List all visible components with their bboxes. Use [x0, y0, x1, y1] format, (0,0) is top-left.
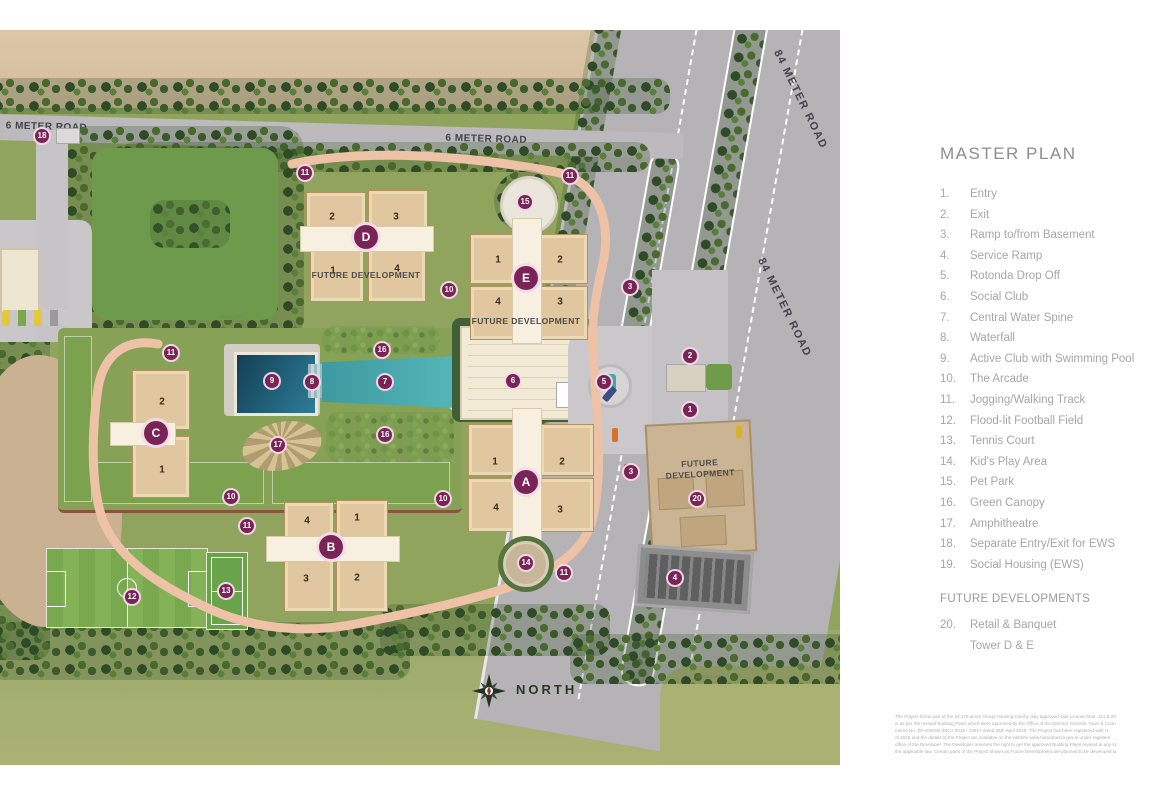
legend-item-number: 9.	[940, 353, 970, 365]
map-marker-3: 3	[623, 280, 637, 294]
legend-item-label: Kid's Play Area	[970, 456, 1047, 468]
legend-item: 19. Social Housing (EWS)	[940, 559, 1165, 580]
legend-item-number: 13.	[940, 435, 970, 447]
legend-item: 2. Exit	[940, 209, 1165, 230]
disclaimer-line: The Project forms part of the 24.175 acr…	[895, 713, 1167, 720]
disclaimer-line: office of the Developer. The Developer r…	[895, 741, 1167, 748]
map-marker-7: 7	[378, 375, 392, 389]
map-marker-15: 15	[518, 195, 532, 209]
legend-item: 17. Amphitheatre	[940, 518, 1165, 539]
map-marker-6: 6	[506, 374, 520, 388]
legend-item-label: Tower D & E	[970, 640, 1034, 652]
legend-item: 18. Separate Entry/Exit for EWS	[940, 538, 1165, 559]
legend-future-items: 20. Retail & Banquet Tower D & E	[940, 619, 1165, 660]
legend-item-number: 4.	[940, 250, 970, 262]
legend-item-label: Active Club with Swimming Pool	[970, 353, 1134, 365]
legend-item-number: 8.	[940, 332, 970, 344]
legend-list: 1. Entry 2. Exit 3. Ramp to/from Basemen…	[940, 188, 1165, 660]
map-marker-20: 20	[690, 492, 704, 506]
legend-items: 1. Entry 2. Exit 3. Ramp to/from Basemen…	[940, 188, 1165, 579]
legend-item-number: 20.	[940, 619, 970, 631]
map-marker-18: 18	[35, 129, 49, 143]
legend-item-label: Waterfall	[970, 332, 1015, 344]
legend-item: 20. Retail & Banquet	[940, 619, 1165, 640]
legend-item: 12. Flood-lit Football Field	[940, 415, 1165, 436]
legend-title: MASTER PLAN	[940, 144, 1076, 164]
legend-item-label: Ramp to/from Basement	[970, 229, 1095, 241]
legend-item: Tower D & E	[940, 640, 1165, 661]
legend-item: 1. Entry	[940, 188, 1165, 209]
legend-item-label: Central Water Spine	[970, 312, 1073, 324]
map-marker-17: 17	[271, 438, 285, 452]
legend-item: 7. Central Water Spine	[940, 312, 1165, 333]
legend-item-label: Social Housing (EWS)	[970, 559, 1084, 571]
legend-item-number: 15.	[940, 476, 970, 488]
legend-disclaimer: The Project forms part of the 24.175 acr…	[895, 713, 1167, 755]
legend-item-number: 1.	[940, 188, 970, 200]
legend-item: 10. The Arcade	[940, 373, 1165, 394]
legend-item: 13. Tennis Court	[940, 435, 1165, 456]
legend-item-number: 16.	[940, 497, 970, 509]
legend-item: 3. Ramp to/from Basement	[940, 229, 1165, 250]
legend-item-number: 11.	[940, 394, 970, 406]
map-marker-1: 1	[683, 403, 697, 417]
map-marker-11: 11	[240, 519, 254, 533]
disclaimer-line: the applicable law. Certain parts of the…	[895, 748, 1167, 755]
map-marker-10: 10	[224, 490, 238, 504]
legend-item-label: Rotonda Drop Off	[970, 270, 1060, 282]
map-marker-12: 12	[125, 590, 139, 604]
disclaimer-line: memo No. ZP-409/SD (DK) / 2019 / 10517 d…	[895, 727, 1167, 734]
legend-panel: MASTER PLAN 1. Entry 2. Exit 3. Ramp to/…	[840, 0, 1170, 785]
legend-item-number: 18.	[940, 538, 970, 550]
legend-item-number: 19.	[940, 559, 970, 571]
legend-item-number: 3.	[940, 229, 970, 241]
map-marker-11: 11	[557, 566, 571, 580]
legend-item: 15. Pet Park	[940, 476, 1165, 497]
map-marker-13: 13	[219, 584, 233, 598]
map-marker-3: 3	[624, 465, 638, 479]
legend-item-number: 14.	[940, 456, 970, 468]
legend-item-number: 7.	[940, 312, 970, 324]
map-marker-16: 16	[378, 428, 392, 442]
legend-item: 14. Kid's Play Area	[940, 456, 1165, 477]
legend-item-number: 10.	[940, 373, 970, 385]
legend-item-number: 12.	[940, 415, 970, 427]
legend-item: 16. Green Canopy	[940, 497, 1165, 518]
map-marker-4: 4	[668, 571, 682, 585]
legend-item-label: Service Ramp	[970, 250, 1042, 262]
legend-item-number: 17.	[940, 518, 970, 530]
legend-item-number: 5.	[940, 270, 970, 282]
legend-future-header: FUTURE DEVELOPMENTS	[940, 593, 1165, 613]
legend-item-label: Social Club	[970, 291, 1028, 303]
legend-item-label: Separate Entry/Exit for EWS	[970, 538, 1115, 550]
map-marker-16: 16	[375, 343, 389, 357]
markers-layer: 1811111111111510101098716161765332120412…	[0, 30, 840, 765]
disclaimer-line: is as per the revised Building Plans whi…	[895, 720, 1167, 727]
map-marker-11: 11	[164, 346, 178, 360]
legend-item-label: Entry	[970, 188, 997, 200]
legend-item-label: The Arcade	[970, 373, 1029, 385]
legend-item: 8. Waterfall	[940, 332, 1165, 353]
legend-item-label: Tennis Court	[970, 435, 1035, 447]
legend-item-label: Flood-lit Football Field	[970, 415, 1083, 427]
legend-item: 6. Social Club	[940, 291, 1165, 312]
map-marker-9: 9	[265, 374, 279, 388]
legend-item-number: 6.	[940, 291, 970, 303]
legend-item-number: 2.	[940, 209, 970, 221]
legend-item: 9. Active Club with Swimming Pool	[940, 353, 1165, 374]
legend-item: 5. Rotonda Drop Off	[940, 270, 1165, 291]
legend-item: 11. Jogging/Walking Track	[940, 394, 1165, 415]
map-marker-8: 8	[305, 375, 319, 389]
legend-item-label: Jogging/Walking Track	[970, 394, 1085, 406]
map-marker-10: 10	[436, 492, 450, 506]
site-plan-map: 84 METER ROAD 84 METER ROAD 6 METER ROAD…	[0, 30, 840, 765]
legend-item: 4. Service Ramp	[940, 250, 1165, 271]
map-marker-14: 14	[519, 556, 533, 570]
legend-item-label: Exit	[970, 209, 989, 221]
map-marker-10: 10	[442, 283, 456, 297]
map-marker-2: 2	[683, 349, 697, 363]
map-marker-5: 5	[597, 375, 611, 389]
legend-item-label: Retail & Banquet	[970, 619, 1056, 631]
legend-item-label: Pet Park	[970, 476, 1014, 488]
map-marker-11: 11	[563, 169, 577, 183]
map-marker-11: 11	[298, 166, 312, 180]
legend-item-label: Amphitheatre	[970, 518, 1038, 530]
legend-item-label: Green Canopy	[970, 497, 1045, 509]
disclaimer-line: of 2019 and the details of the Project a…	[895, 734, 1167, 741]
master-plan-page: 84 METER ROAD 84 METER ROAD 6 METER ROAD…	[0, 0, 1170, 785]
